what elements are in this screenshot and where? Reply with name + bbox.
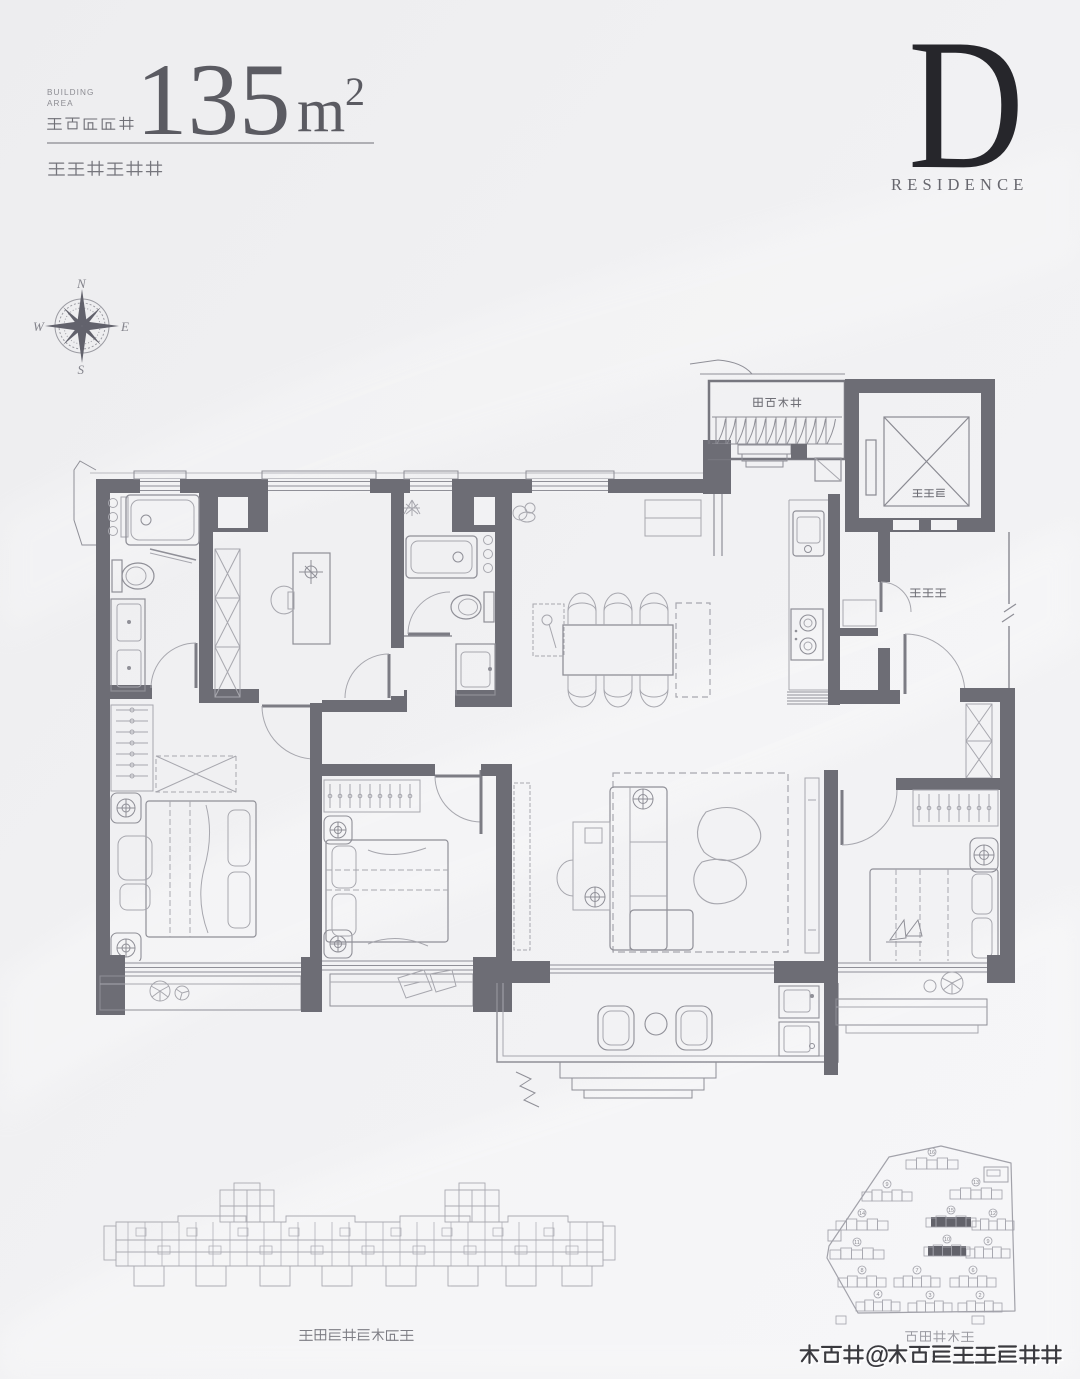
svg-text:2: 2 xyxy=(345,69,365,114)
svg-text:2: 2 xyxy=(978,1293,981,1299)
svg-text:@: @ xyxy=(865,1342,889,1369)
svg-text:16: 16 xyxy=(929,1150,935,1156)
svg-text:E: E xyxy=(120,319,129,334)
svg-text:13: 13 xyxy=(973,1180,979,1186)
svg-text:AREA: AREA xyxy=(47,99,74,108)
svg-text:W: W xyxy=(33,319,45,334)
svg-text:4: 4 xyxy=(876,1292,879,1298)
svg-text:S: S xyxy=(78,362,85,377)
svg-text:9: 9 xyxy=(885,1182,888,1188)
svg-text:15: 15 xyxy=(948,1208,954,1214)
svg-text:6: 6 xyxy=(971,1268,974,1274)
svg-text:10: 10 xyxy=(944,1237,950,1243)
svg-text:12: 12 xyxy=(990,1211,996,1217)
svg-text:135: 135 xyxy=(136,43,291,157)
svg-text:7: 7 xyxy=(915,1268,918,1274)
svg-text:14: 14 xyxy=(859,1211,865,1217)
svg-text:m: m xyxy=(297,77,345,145)
svg-text:RESIDENCE: RESIDENCE xyxy=(891,175,1029,194)
svg-text:BUILDING: BUILDING xyxy=(47,88,94,97)
svg-text:8: 8 xyxy=(860,1268,863,1274)
svg-text:N: N xyxy=(76,276,87,291)
svg-text:11: 11 xyxy=(854,1240,860,1246)
svg-text:3: 3 xyxy=(928,1293,931,1299)
svg-text:9: 9 xyxy=(986,1239,989,1245)
